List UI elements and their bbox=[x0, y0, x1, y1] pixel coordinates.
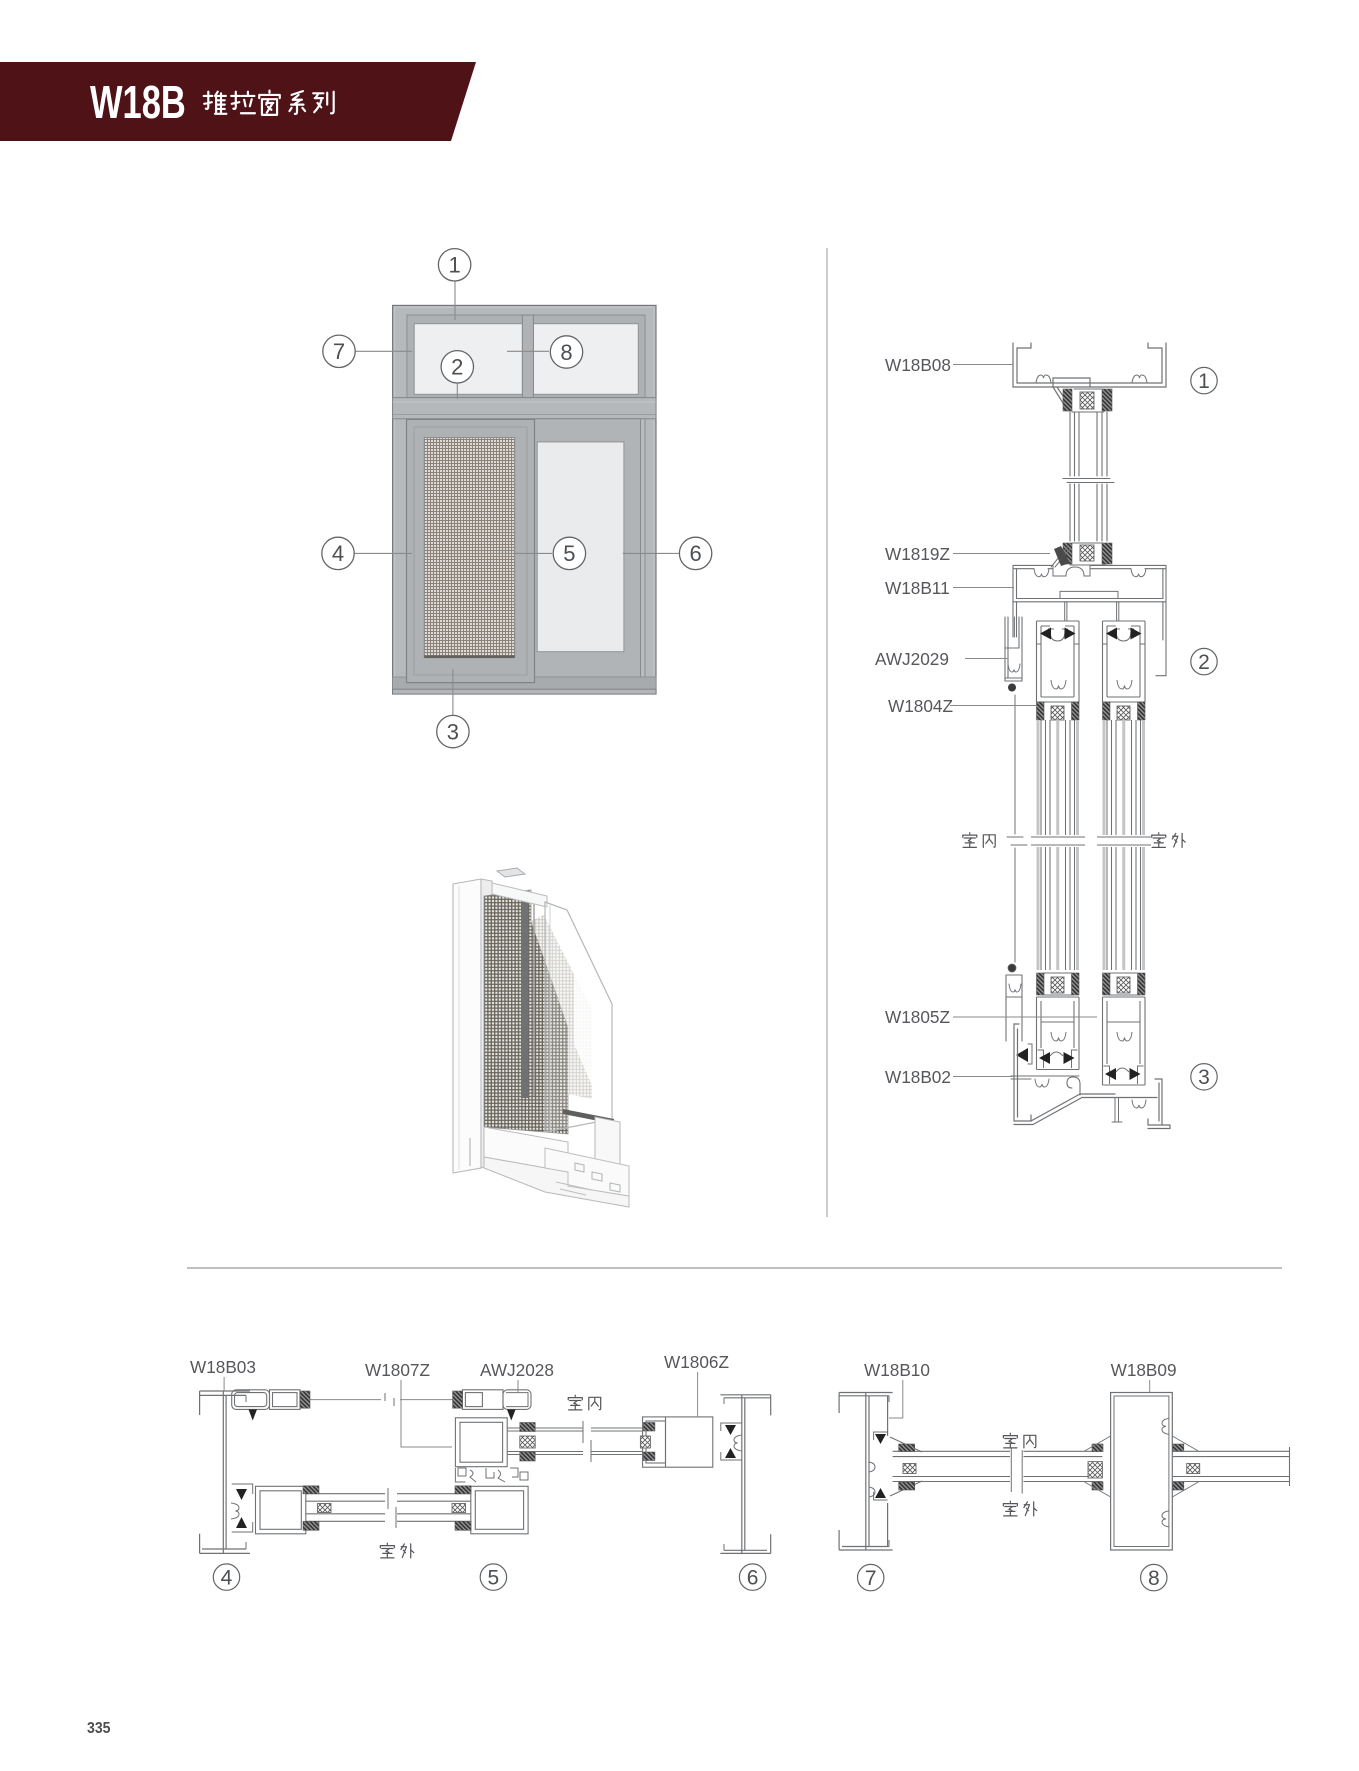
svg-text:6: 6 bbox=[689, 541, 701, 566]
svg-text:2: 2 bbox=[451, 355, 463, 380]
svg-text:1: 1 bbox=[448, 253, 460, 278]
svg-text:8: 8 bbox=[560, 340, 572, 365]
svg-text:W18B11: W18B11 bbox=[885, 578, 950, 598]
svg-text:W1804Z: W1804Z bbox=[888, 696, 953, 716]
svg-text:W1819Z: W1819Z bbox=[885, 544, 950, 564]
svg-text:AWJ2029: AWJ2029 bbox=[875, 649, 949, 669]
svg-text:W18B03: W18B03 bbox=[190, 1357, 256, 1377]
svg-text:3: 3 bbox=[1198, 1066, 1210, 1089]
svg-text:335: 335 bbox=[87, 1719, 110, 1737]
svg-text:5: 5 bbox=[563, 541, 575, 566]
svg-text:W1806Z: W1806Z bbox=[664, 1352, 729, 1372]
svg-text:5: 5 bbox=[488, 1567, 500, 1590]
svg-text:AWJ2028: AWJ2028 bbox=[480, 1360, 554, 1380]
svg-text:4: 4 bbox=[332, 541, 344, 566]
svg-text:1: 1 bbox=[1198, 370, 1210, 393]
svg-text:W1807Z: W1807Z bbox=[365, 1360, 430, 1380]
svg-text:2: 2 bbox=[1198, 651, 1210, 674]
svg-text:7: 7 bbox=[865, 1567, 877, 1590]
svg-text:8: 8 bbox=[1148, 1567, 1160, 1590]
svg-text:W1805Z: W1805Z bbox=[885, 1007, 950, 1027]
svg-text:W18B02: W18B02 bbox=[885, 1067, 951, 1087]
svg-text:7: 7 bbox=[333, 339, 345, 364]
svg-text:W18B08: W18B08 bbox=[885, 355, 951, 375]
svg-text:3: 3 bbox=[447, 719, 459, 744]
svg-text:W18B10: W18B10 bbox=[864, 1360, 930, 1380]
svg-text:W18B09: W18B09 bbox=[1111, 1360, 1177, 1380]
svg-text:4: 4 bbox=[221, 1567, 233, 1590]
svg-text:6: 6 bbox=[747, 1567, 759, 1590]
svg-text:W18B: W18B bbox=[90, 76, 186, 128]
